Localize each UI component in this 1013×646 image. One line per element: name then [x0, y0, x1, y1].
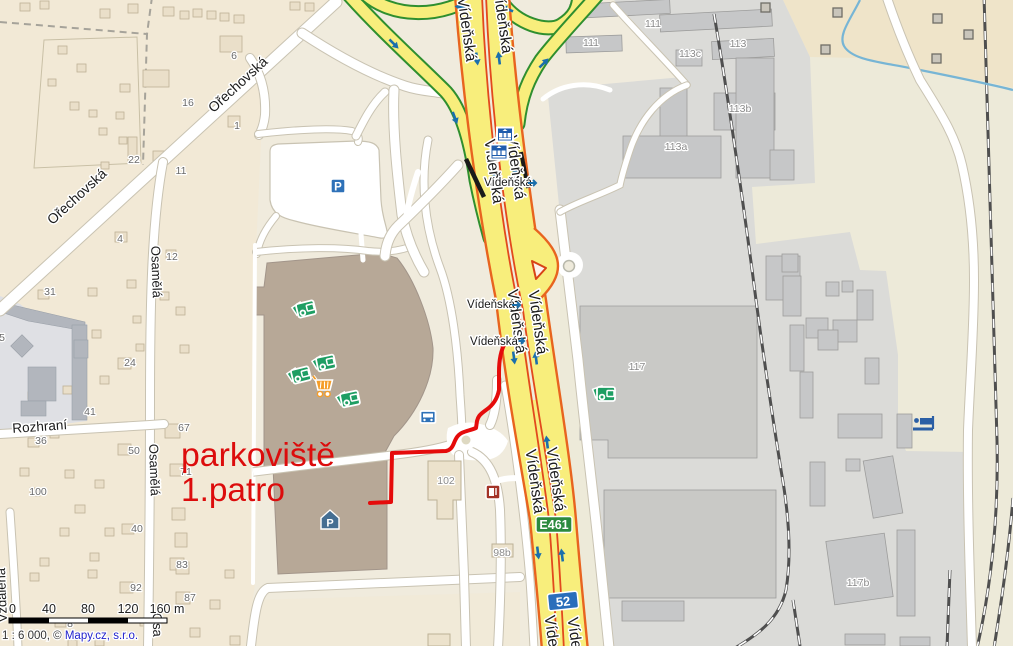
svg-text:Osa: Osa	[150, 613, 166, 638]
svg-text:5: 5	[0, 332, 5, 344]
svg-text:1 : 6 000, © Mapy.cz, s.r.o.: 1 : 6 000, © Mapy.cz, s.r.o.	[2, 630, 138, 642]
svg-text:E461: E461	[539, 518, 568, 532]
svg-text:1.patro: 1.patro	[181, 471, 285, 508]
svg-text:113c: 113c	[679, 48, 701, 60]
svg-text:P: P	[326, 518, 333, 530]
svg-text:Vídeňská: Vídeňská	[470, 336, 519, 348]
svg-text:11: 11	[176, 165, 187, 177]
svg-text:52: 52	[555, 593, 571, 609]
svg-text:1: 1	[234, 120, 240, 132]
svg-text:92: 92	[130, 582, 142, 594]
svg-text:117b: 117b	[847, 577, 870, 589]
svg-text:100: 100	[29, 486, 47, 498]
svg-text:12: 12	[166, 251, 178, 263]
svg-text:22: 22	[128, 154, 140, 166]
svg-text:24: 24	[124, 357, 136, 369]
svg-text:111: 111	[583, 37, 599, 49]
svg-text:98b: 98b	[493, 547, 511, 559]
svg-text:40: 40	[131, 523, 143, 535]
svg-text:113: 113	[730, 38, 747, 50]
svg-text:120: 120	[118, 602, 139, 616]
svg-text:parkoviště: parkoviště	[181, 436, 335, 473]
svg-text:31: 31	[44, 286, 56, 298]
svg-text:80: 80	[81, 602, 95, 616]
svg-text:50: 50	[128, 445, 140, 457]
svg-text:102: 102	[437, 475, 455, 487]
svg-text:Osamělá: Osamělá	[148, 246, 165, 299]
svg-text:67: 67	[178, 422, 190, 434]
svg-text:113a: 113a	[665, 141, 688, 153]
svg-text:Osamělá: Osamělá	[146, 444, 163, 497]
svg-text:160 m: 160 m	[150, 602, 185, 616]
svg-text:111: 111	[645, 18, 661, 30]
svg-text:83: 83	[176, 559, 188, 571]
svg-text:113b: 113b	[729, 103, 752, 115]
svg-text:0: 0	[9, 602, 16, 616]
svg-text:Vídeňská: Vídeňská	[484, 177, 533, 189]
svg-text:4: 4	[117, 233, 123, 245]
svg-text:16: 16	[182, 97, 194, 109]
svg-text:87: 87	[184, 592, 196, 604]
svg-text:117: 117	[629, 361, 646, 373]
svg-text:41: 41	[84, 406, 96, 418]
svg-text:40: 40	[42, 602, 56, 616]
svg-text:6: 6	[231, 50, 237, 62]
svg-text:P: P	[334, 182, 342, 194]
svg-text:Vídeňská: Vídeňská	[467, 299, 516, 311]
svg-text:36: 36	[35, 435, 47, 447]
